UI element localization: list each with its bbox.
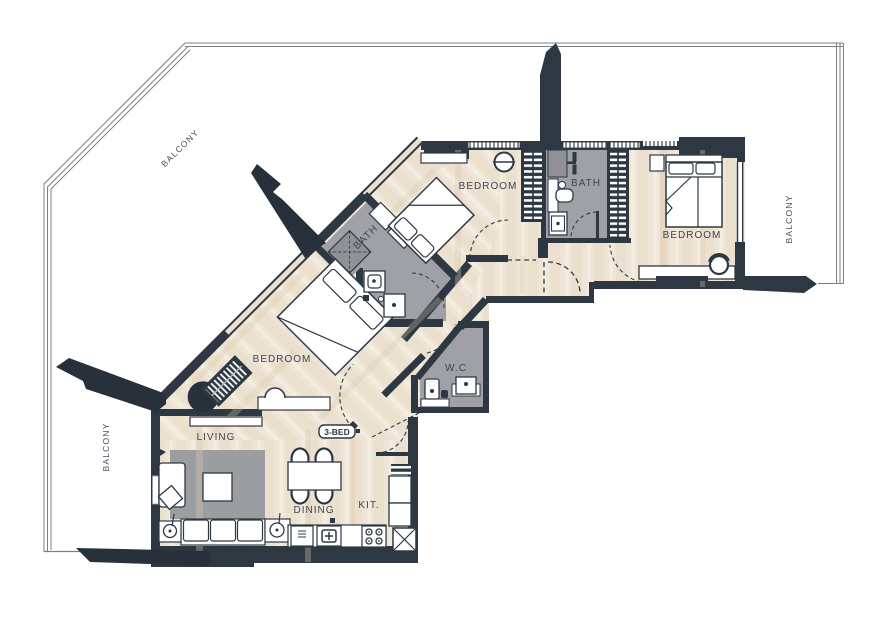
svg-text:3-BED: 3-BED: [324, 427, 350, 437]
svg-text:BALCONY: BALCONY: [784, 194, 794, 243]
svg-text:W.C: W.C: [445, 363, 467, 374]
svg-text:BALCONY: BALCONY: [101, 422, 111, 471]
svg-text:DINING: DINING: [294, 505, 335, 516]
svg-text:LIVING: LIVING: [197, 432, 236, 443]
svg-text:BEDROOM: BEDROOM: [663, 230, 722, 241]
svg-text:BEDROOM: BEDROOM: [459, 181, 518, 192]
svg-text:KIT.: KIT.: [358, 500, 379, 511]
svg-text:BATH: BATH: [571, 178, 601, 189]
svg-text:BEDROOM: BEDROOM: [253, 354, 312, 365]
